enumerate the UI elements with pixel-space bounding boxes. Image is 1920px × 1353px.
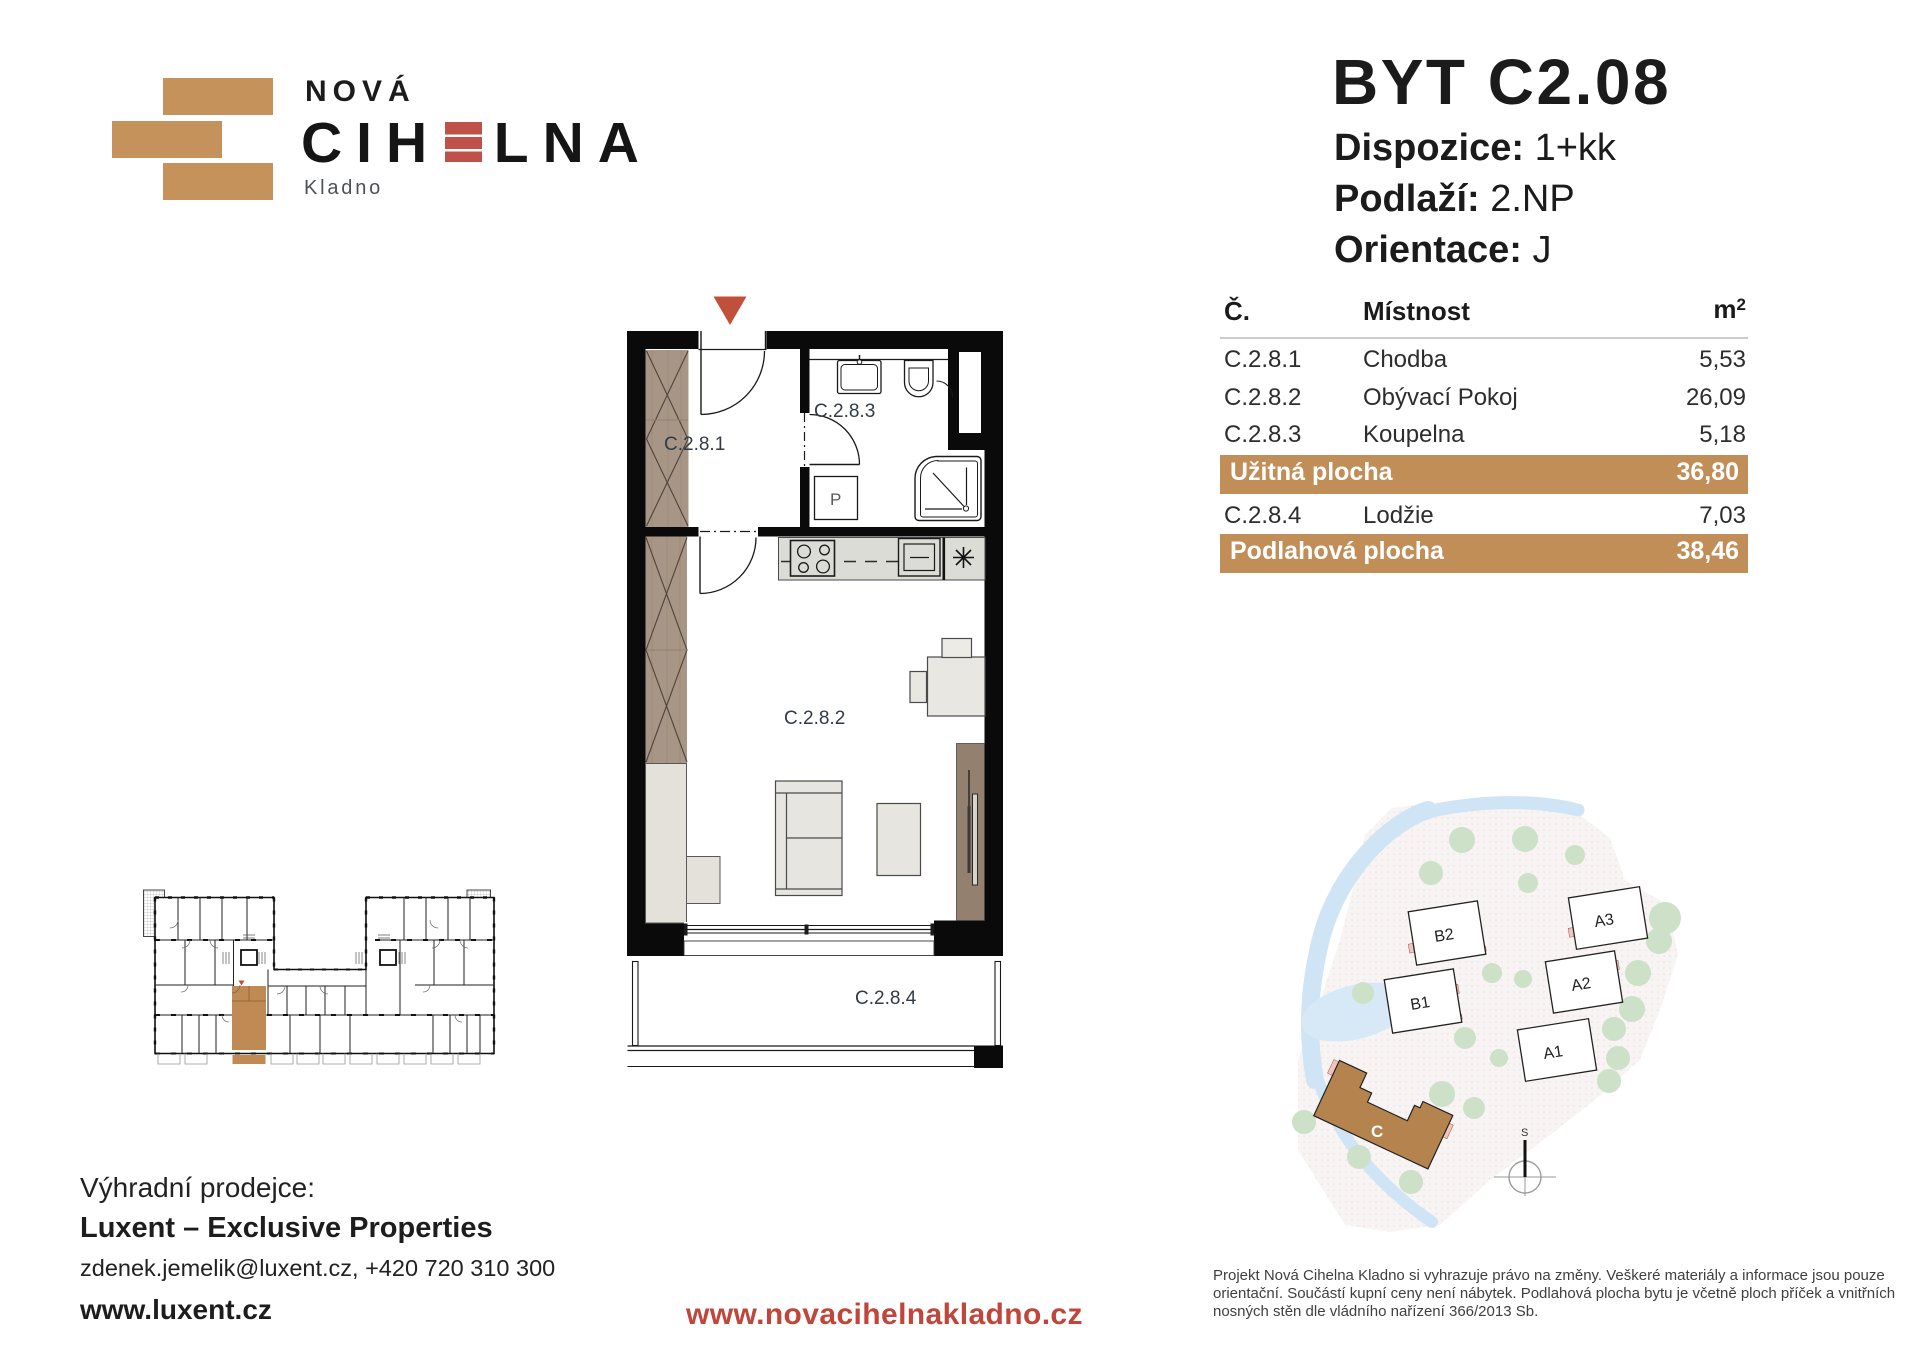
svg-text:S: S: [1521, 1127, 1528, 1139]
svg-text:C.2.8.2: C.2.8.2: [784, 708, 845, 729]
svg-text:A3: A3: [1593, 911, 1615, 931]
svg-text:A1: A1: [1542, 1043, 1564, 1063]
svg-text:C.2.8.4: C.2.8.4: [855, 988, 917, 1009]
svg-text:B2: B2: [1433, 926, 1455, 946]
svg-text:C: C: [1371, 1122, 1383, 1141]
svg-text:A2: A2: [1570, 975, 1592, 995]
svg-text:C.2.8.3: C.2.8.3: [814, 401, 875, 422]
svg-text:C.2.8.1: C.2.8.1: [664, 434, 725, 455]
svg-text:P: P: [830, 490, 841, 509]
svg-text:B1: B1: [1409, 994, 1431, 1014]
